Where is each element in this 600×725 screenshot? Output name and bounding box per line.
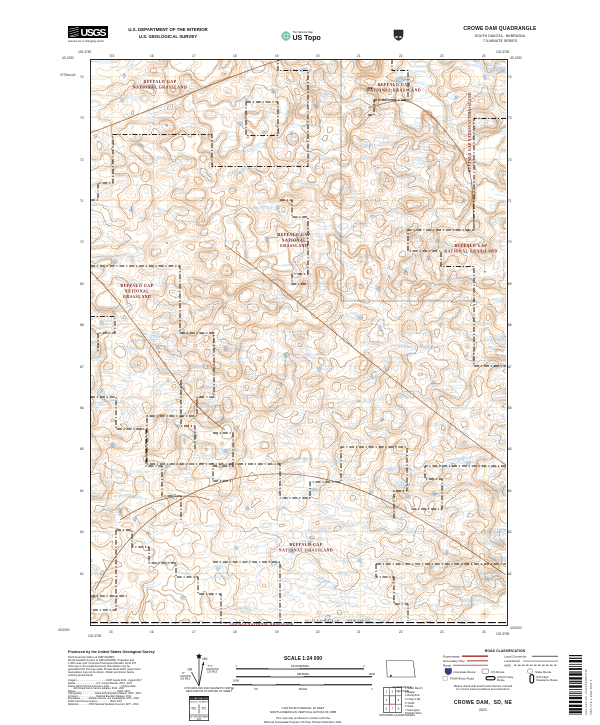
svg-text:State Route: State Route: [535, 670, 552, 674]
svg-text:3: 3: [398, 690, 400, 694]
svg-text:125 MILS: 125 MILS: [207, 671, 218, 674]
svg-text:U.S. NATIONAL GRID: U.S. NATIONAL GRID: [190, 697, 209, 700]
svg-text:2: 2: [363, 664, 365, 668]
svg-text:PC: PC: [202, 707, 207, 711]
svg-text:1000: 1000: [233, 679, 240, 683]
svg-text:FS/W Entry Road: FS/W Entry Road: [450, 677, 474, 681]
svg-text:GN: GN: [188, 668, 193, 672]
svg-text:1: 1: [231, 687, 233, 691]
svg-text:MN: MN: [203, 657, 209, 661]
svg-text:Clearance Route: Clearance Route: [536, 678, 558, 682]
svg-text:NC: NC: [192, 707, 197, 711]
svg-text:1: 1: [235, 664, 237, 668]
svg-text:1: 1: [386, 690, 388, 694]
svg-text:0.5: 0.5: [254, 687, 258, 691]
svg-text:USGS: USGS: [81, 27, 107, 38]
svg-text:KILOMETERS: KILOMETERS: [291, 664, 309, 668]
svg-text:The National Map: The National Map: [293, 30, 314, 34]
svg-text:5: 5: [398, 698, 400, 702]
svg-text:13T: 13T: [197, 717, 202, 721]
svg-text:Expressway: Expressway: [443, 654, 460, 658]
svg-text:7: 7: [392, 706, 394, 710]
svg-text:Local Connector: Local Connector: [504, 654, 527, 658]
svg-text:8: 8: [398, 706, 400, 710]
svg-text:9°: 9°: [182, 671, 186, 675]
svg-text:2: 2: [392, 690, 394, 694]
svg-text:100,000-m SQUARE ID: 100,000-m SQUARE ID: [190, 701, 209, 704]
svg-text:6: 6: [386, 706, 388, 710]
svg-text:Ramp: Ramp: [443, 663, 452, 667]
svg-text:US Topo: US Topo: [293, 35, 321, 42]
svg-text:ISBN 978-1-3982-0831-5: ISBN 978-1-3982-0831-5: [589, 679, 593, 715]
svg-text:2000: 2000: [369, 672, 376, 676]
svg-text:4WD: 4WD: [504, 663, 512, 667]
svg-text:1: 1: [371, 687, 373, 691]
svg-text:MILES: MILES: [299, 687, 308, 691]
svg-text:US Route: US Route: [491, 670, 505, 674]
svg-text:METERS: METERS: [297, 672, 309, 676]
svg-text:4: 4: [386, 698, 388, 702]
svg-text:Route: Route: [497, 678, 505, 682]
svg-text:NGA REF NO. USGSX24K67519: NGA REF NO. USGSX24K67519: [584, 669, 588, 715]
svg-text:160 MILS: 160 MILS: [180, 678, 191, 681]
svg-text:Interstate Route: Interstate Route: [454, 670, 476, 674]
svg-text:7°1': 7°1': [208, 664, 214, 668]
